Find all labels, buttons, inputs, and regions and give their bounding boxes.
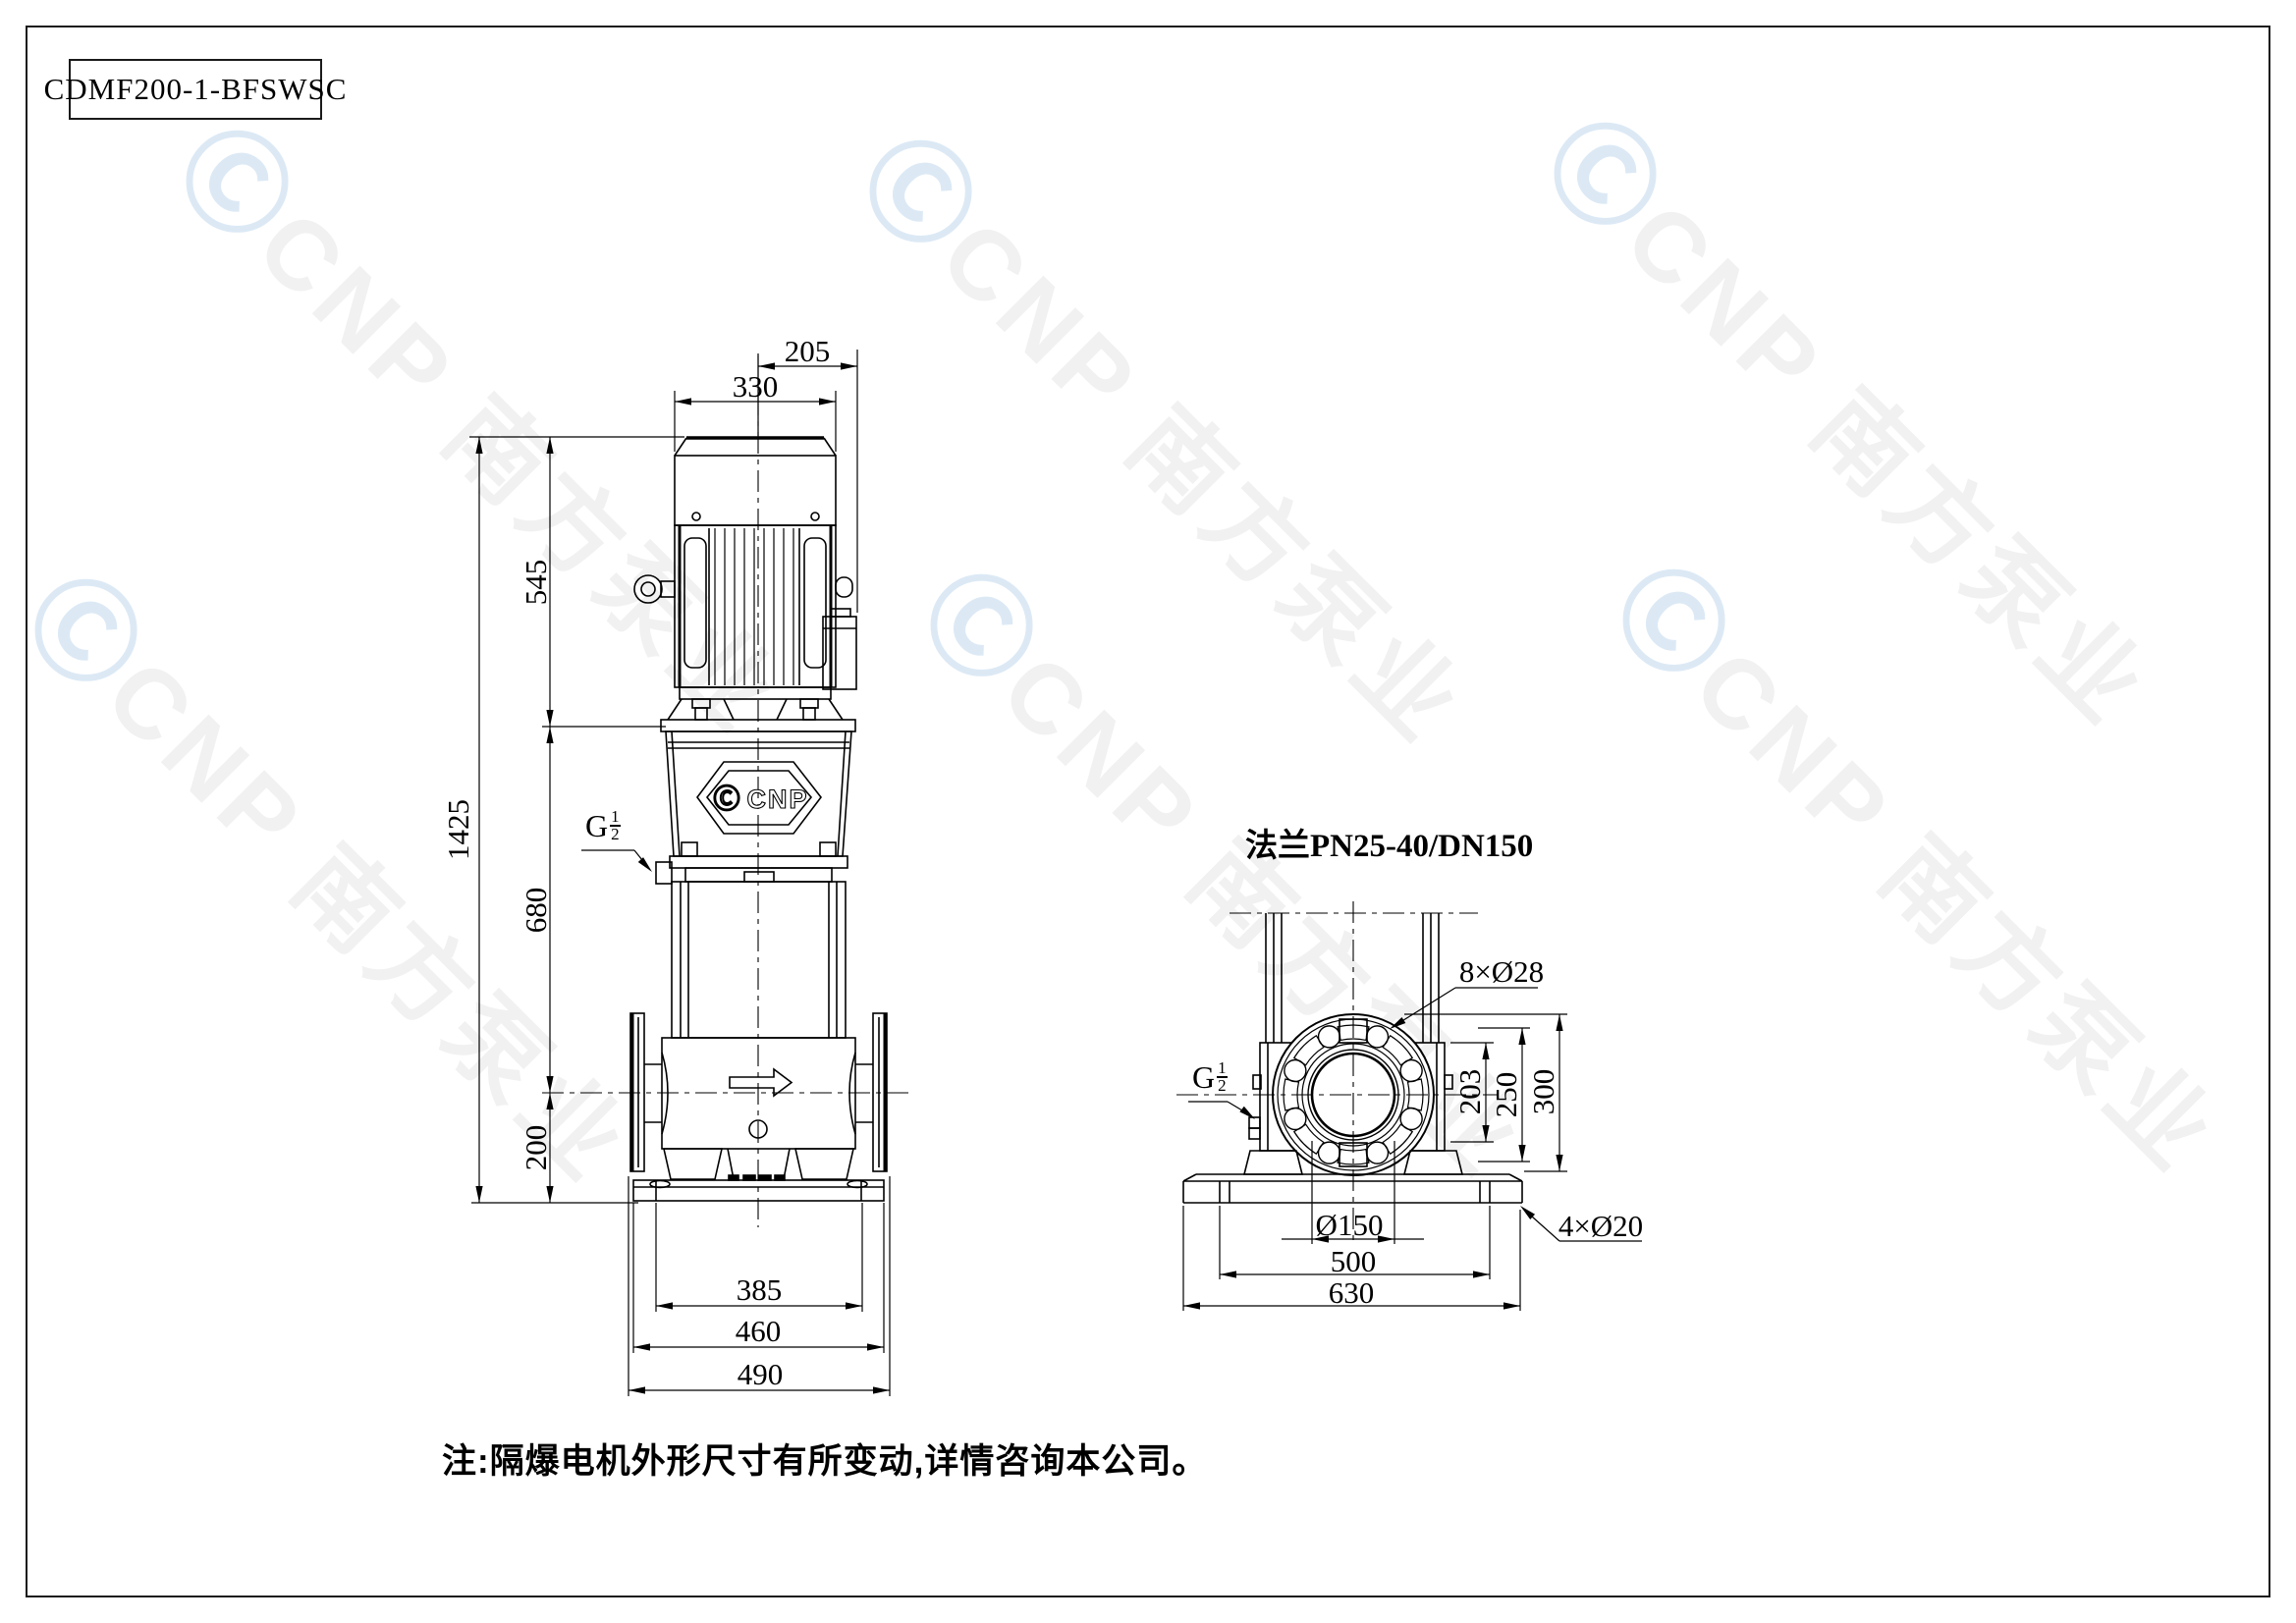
dim-pump-mid-height: 680	[519, 888, 554, 934]
port-thread-prefix: G	[1192, 1062, 1215, 1092]
pump-column	[656, 862, 846, 1038]
drain-port-label-front: G 12	[585, 809, 621, 842]
dim-port-center-height: 200	[519, 1125, 554, 1171]
flange-spec-note: 法兰PN25-40/DN150	[1245, 819, 1533, 866]
port-thread-prefix: G	[585, 811, 608, 840]
dim-bolt-holes: 8×Ø28	[1459, 954, 1544, 990]
dim-base-bolt-span-side: 500	[1331, 1244, 1377, 1279]
dim-base-width-side: 630	[1329, 1275, 1375, 1311]
dim-foundation-holes: 4×Ø20	[1558, 1209, 1643, 1244]
dim-hub-height: 203	[1452, 1069, 1488, 1115]
dim-flange-od-height: 300	[1526, 1069, 1561, 1115]
dim-coupling-height: 250	[1489, 1072, 1524, 1118]
motor-body	[634, 525, 856, 689]
dim-motor-width: 330	[733, 369, 779, 405]
flow-direction-arrow	[730, 1069, 792, 1096]
dim-bore-diameter: Ø150	[1316, 1208, 1384, 1243]
port-thread-fraction: 12	[1217, 1060, 1228, 1094]
dim-total-height: 1425	[441, 799, 476, 860]
drawing-canvas: Ⓒ CNP	[0, 0, 2296, 1623]
motor-feet	[668, 687, 843, 720]
dim-motor-offset-top: 205	[785, 334, 831, 369]
dimension-lines-front	[469, 350, 890, 1396]
motor-fins	[715, 528, 793, 685]
cnp-badge-text: CNP	[746, 784, 808, 814]
terminal-box	[823, 609, 856, 689]
dim-base-plate-width-front: 460	[736, 1314, 782, 1349]
fraction-denominator: 2	[1217, 1078, 1228, 1094]
dim-motor-height: 545	[519, 560, 554, 606]
motor-side-boss	[836, 577, 852, 597]
dim-base-bolt-span-front: 385	[737, 1272, 783, 1308]
dim-flange-face-span: 490	[738, 1357, 784, 1392]
footnote: 注:隔爆电机外形尺寸有所变动,详情咨询本公司。	[442, 1434, 1207, 1484]
fraction-denominator: 2	[610, 827, 621, 842]
side-gauge-port	[1249, 1117, 1260, 1139]
lifting-eye-bolt	[634, 575, 675, 603]
drain-port-label-side: G 12	[1192, 1060, 1228, 1094]
drawing-sheet: ⒸCNP 南方泵业 ⒸCNP 南方泵业 ⒸCNP 南方泵业 ⒸCNP 南方泵业 …	[0, 0, 2296, 1623]
port-thread-fraction: 12	[610, 809, 621, 842]
motor-fan-cover	[675, 438, 836, 525]
cnp-badge-logo-icon: Ⓒ	[714, 784, 740, 814]
